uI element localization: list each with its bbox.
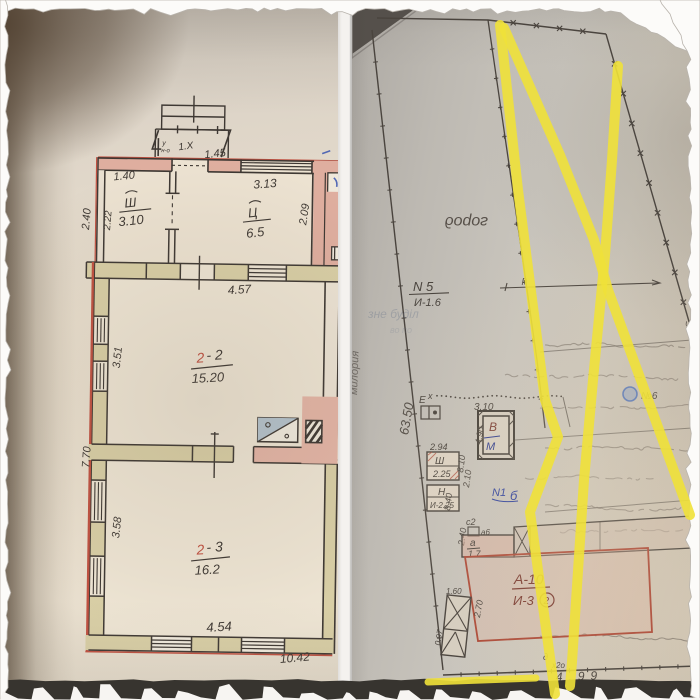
svg-text:2.94: 2.94 — [429, 442, 448, 452]
svg-text:3.10: 3.10 — [474, 402, 494, 413]
svg-text:а: а — [470, 538, 476, 549]
svg-text:х: х — [427, 391, 433, 401]
svg-text:б: б — [683, 321, 694, 331]
svg-text:16.2: 16.2 — [194, 561, 221, 577]
svg-text:№6: №6 — [641, 391, 658, 402]
svg-text:во по: во по — [390, 325, 412, 335]
svg-text:4.57: 4.57 — [227, 282, 252, 297]
svg-text:15.20: 15.20 — [191, 369, 225, 386]
svg-text:И-3: И-3 — [513, 593, 535, 608]
svg-text:р: р — [521, 275, 527, 285]
svg-text:н-о: н-о — [161, 148, 170, 154]
svg-text:N 5: N 5 — [413, 279, 434, 294]
svg-text:6.5: 6.5 — [245, 224, 265, 241]
svg-text:1.40: 1.40 — [113, 169, 136, 183]
svg-text:2: 2 — [195, 541, 205, 557]
svg-text:у: у — [161, 140, 166, 147]
svg-text:А-10: А-10 — [513, 571, 544, 587]
svg-text:3.58: 3.58 — [110, 515, 124, 538]
svg-text:10.42: 10.42 — [279, 649, 310, 666]
svg-text:N1: N1 — [492, 487, 506, 499]
svg-text:2.25: 2.25 — [432, 469, 452, 479]
svg-text:2.22: 2.22 — [102, 210, 115, 232]
svg-text:Ш: Ш — [435, 456, 445, 467]
svg-text:И-1.6: И-1.6 — [414, 297, 442, 309]
svg-text:1.60: 1.60 — [446, 587, 462, 596]
svg-text:4.54: 4.54 — [206, 619, 232, 635]
svg-text:город: город — [445, 213, 488, 230]
svg-text:Е: Е — [419, 395, 426, 406]
svg-text:63.50: 63.50 — [396, 401, 417, 436]
svg-text:3.13: 3.13 — [253, 176, 278, 192]
svg-text:1.Х: 1.Х — [178, 140, 195, 153]
svg-text:2: 2 — [543, 596, 550, 607]
svg-text:4.99: 4.99 — [556, 668, 604, 682]
svg-text:зне буділ: зне буділ — [367, 307, 419, 321]
svg-text:В: В — [489, 420, 497, 434]
svg-text:- 3: - 3 — [206, 538, 223, 555]
svg-text:3.10: 3.10 — [118, 212, 146, 230]
svg-text:2.10: 2.10 — [461, 469, 473, 489]
svg-text:2.40: 2.40 — [80, 207, 94, 231]
svg-text:7.70: 7.70 — [80, 445, 93, 468]
svg-text:Ш: Ш — [124, 194, 138, 210]
svg-text:с2: с2 — [466, 517, 476, 527]
svg-text:3.51: 3.51 — [111, 346, 125, 369]
svg-text:д: д — [543, 652, 548, 662]
svg-text:М: М — [486, 441, 496, 453]
svg-text:- 2: - 2 — [206, 346, 223, 363]
svg-text:милория: милория — [352, 350, 362, 395]
svg-text:х2о: х2о — [551, 661, 565, 670]
svg-text:2: 2 — [195, 349, 205, 365]
